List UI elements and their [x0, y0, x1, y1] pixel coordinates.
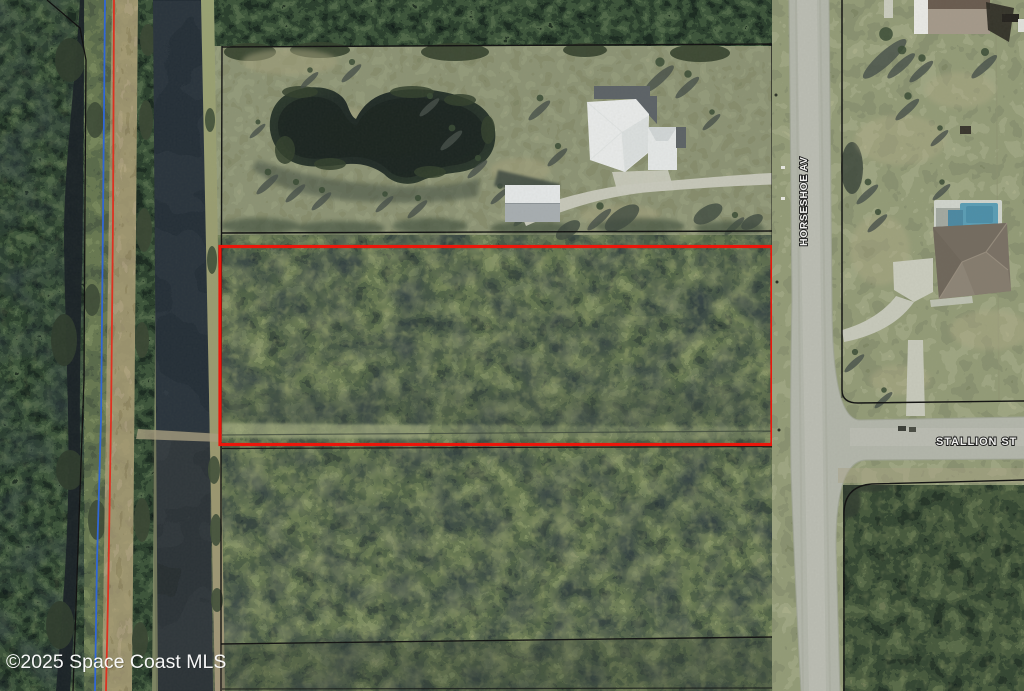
svg-text:HORSESHOE AV: HORSESHOE AV: [798, 157, 810, 246]
svg-text:STALLION ST: STALLION ST: [936, 436, 1017, 448]
svg-text:©2025 Space Coast MLS: ©2025 Space Coast MLS: [6, 651, 226, 673]
